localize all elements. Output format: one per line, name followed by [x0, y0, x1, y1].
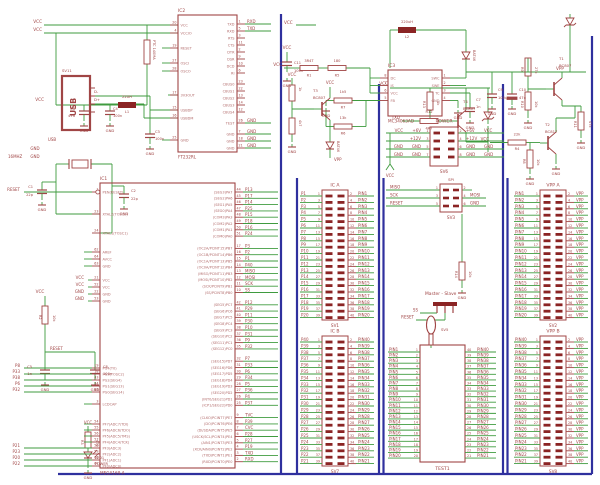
ic1-pin-number: 62: [94, 248, 98, 252]
sv2-right-net: VPP: [576, 255, 584, 260]
sv8-pad: [544, 417, 551, 420]
sv6-num: 3: [426, 137, 428, 141]
sv7-right-num: 40: [350, 460, 354, 464]
sv7-refdes: SV7: [331, 469, 340, 474]
sv2-left-net: PIN2: [515, 197, 525, 202]
sv8-pad: [556, 443, 563, 446]
ic1-pin-name: (OC0A/PCINT12)PB4: [197, 266, 233, 270]
ic2-pin-name: 3V3OUT: [181, 93, 196, 97]
ic1-pin-name: (SEG1)PA5: [214, 203, 233, 207]
ic1-net-label: GND: [75, 296, 84, 301]
sv7-left-num: 7: [318, 357, 320, 361]
sv7-left-net: P39: [301, 343, 309, 348]
sv2-pad: [544, 233, 551, 236]
ic1-pin-name: (SEG0)PA4: [214, 209, 233, 213]
sv8-left-net: PIN23: [515, 446, 527, 451]
zif-right-num: 25: [467, 432, 471, 436]
sv1-right-num: 40: [350, 314, 354, 318]
zif-left-num: 6: [416, 376, 418, 380]
ic2-pin-name: GND: [226, 139, 234, 143]
sv6-pad: [434, 140, 441, 143]
sv1-left-num: 35: [316, 301, 320, 305]
misc-label: 13k: [340, 116, 348, 120]
sv8-pad: [556, 430, 563, 433]
sv2-left-net: PIN7: [515, 229, 525, 234]
ic1-net-label: P11: [245, 312, 253, 317]
ic1-pin-number: 52: [94, 283, 98, 287]
sv8-pad: [544, 424, 551, 427]
sv1-right-net: PIN6: [358, 223, 368, 228]
misc-label: T4: [462, 99, 468, 104]
zif-right-net: PIN25: [477, 431, 489, 436]
sv2-title: VPP A: [546, 183, 560, 189]
transistor-icon: [554, 93, 562, 100]
ic1-pin-name: GND: [103, 299, 111, 303]
ic1-pin-number: 59: [94, 450, 98, 454]
sv8-right-net: VPP: [576, 433, 584, 438]
sv2-left-num: 29: [534, 282, 538, 286]
misc-label: 47u: [519, 96, 526, 100]
ic2-pin-name: CTS: [228, 43, 236, 47]
sv7-left-num: 17: [316, 389, 320, 393]
sv7-pad: [338, 424, 345, 427]
transistor-icon: [554, 78, 562, 85]
sv8-right-net: VPP: [576, 395, 584, 400]
misc-label: R3: [80, 440, 84, 445]
sv2-pad: [556, 214, 563, 217]
misc-label: 10k: [468, 271, 472, 278]
ic2-pin-number: 10: [239, 62, 243, 66]
ic1-net-label: TVC: [244, 413, 253, 418]
ic1-pin-name: (SEG15)PD7: [211, 360, 232, 364]
ic1-pin-name: PF6(ADC6/TDO): [103, 428, 131, 432]
misc-label: VCC: [284, 20, 293, 25]
sv7-right-num: 6: [350, 351, 352, 355]
sv2-right-num: 26: [568, 269, 572, 273]
sv7-pad: [326, 379, 333, 382]
sv2-pad: [556, 195, 563, 198]
ic1-pin-number: 64: [94, 255, 98, 259]
ic2-pin-name: TEST: [225, 121, 236, 125]
jumper-net-b: RESET: [401, 315, 414, 320]
ic1-net-label: P21: [12, 443, 20, 448]
sv1-pad: [338, 233, 345, 236]
sv2-pad: [544, 303, 551, 306]
sv6-pad: [448, 140, 455, 143]
misc-label: C7: [476, 98, 481, 102]
misc-label: VCC: [84, 420, 93, 425]
gnd-label: GND: [577, 145, 586, 150]
sv2-right-net: VPP: [576, 229, 584, 234]
sv8-pad: [556, 366, 563, 369]
zif-left-net: PIN16: [389, 431, 401, 436]
sv7-right-num: 2: [350, 338, 352, 342]
sv2-right-num: 6: [568, 205, 570, 209]
misc-label: C2: [131, 189, 136, 193]
jumper-icon: [433, 302, 457, 306]
sv1-pad: [326, 252, 333, 255]
zif-right-net: PIN29: [477, 408, 489, 413]
ic2-pin-name: RXD: [227, 29, 235, 33]
sv7-pad: [338, 392, 345, 395]
sv7-right-net: PIN22: [358, 452, 370, 457]
sv7-right-net: PIN40: [358, 337, 370, 342]
sv8-pad: [544, 437, 551, 440]
sv7-right-net: PIN29: [358, 407, 370, 412]
sv1-right-net: PIN5: [358, 217, 368, 222]
misc-label: C10: [519, 88, 527, 92]
zif-right-num: 29: [467, 409, 471, 413]
jumper-net-a: SS: [413, 308, 419, 313]
ic1-pin-name: (SS/PCINT8)PB0: [205, 291, 233, 295]
zif-right-num: 23: [467, 443, 471, 447]
sv6-refdes: SV6: [440, 169, 449, 174]
sv8-pad: [544, 449, 551, 452]
zif-left-net: PIN6: [389, 375, 399, 380]
zif-left-num: 20: [414, 454, 418, 458]
misc-label: USB: [48, 137, 56, 142]
sv8-right-net: VPP: [576, 337, 584, 342]
sv1-pad: [338, 201, 345, 204]
ic2-pin-name: VCCIO: [181, 31, 192, 35]
misc-label: VCC: [326, 80, 335, 85]
sv1-pad: [326, 207, 333, 210]
ic1-pin-number: 46: [237, 200, 241, 204]
zif-right-num: 32: [467, 393, 471, 397]
sv2-pad: [556, 284, 563, 287]
sv1-right-num: 14: [350, 230, 354, 234]
ic1-net-label: SCK: [245, 281, 253, 286]
sv1-pad: [326, 303, 333, 306]
ic1-pin-number: 3: [96, 400, 98, 404]
ic2-refdes: IC2: [178, 8, 185, 14]
misc-label: VCC: [33, 19, 42, 24]
sv7-pad: [338, 379, 345, 382]
misc-label: R8: [522, 159, 526, 164]
sv2-left-num: 23: [534, 262, 538, 266]
ic1-net-label: P3: [245, 243, 250, 248]
sv3-pad: [453, 189, 459, 192]
sv8-pad: [556, 411, 563, 414]
zif-right-net: PIN39: [477, 353, 489, 358]
vcc-arrow: [390, 164, 394, 170]
sv8-pad: [544, 456, 551, 459]
sv7-right-num: 32: [350, 434, 354, 438]
misc-label: VCC: [481, 137, 490, 142]
sv8-pad: [556, 424, 563, 427]
ic1-pin-name: LCDCAP: [103, 402, 117, 406]
sv1-right-net: PIN4: [358, 210, 368, 215]
sv2-left-net: PIN15: [515, 281, 527, 286]
ic1-pin-name: AREF: [103, 250, 112, 254]
sv2-right-num: 34: [568, 294, 572, 298]
sv3-pad: [443, 205, 449, 208]
resistor-icon: [459, 262, 465, 280]
ic1-pin-name: (DI/SDA/PCINT5)PE5: [197, 429, 232, 433]
sv7-right-num: 36: [350, 447, 354, 451]
ic1-net-label: RXD: [245, 457, 254, 462]
sv8-left-net: PIN22: [515, 452, 527, 457]
ic1-net-label: GND: [75, 289, 84, 294]
sv2-left-net: PIN17: [515, 293, 527, 298]
sv7-right-num: 16: [350, 383, 354, 387]
sv8-pad: [556, 347, 563, 350]
ic1-pin-name: PG1(SEG13): [103, 384, 125, 388]
ic1-net-label: P16: [245, 225, 253, 230]
sv6-left-net: GND: [412, 152, 421, 157]
sv8-left-num: 5: [536, 351, 538, 355]
sv8-right-net: VPP: [576, 356, 584, 361]
ic1-pin-number: 29: [237, 376, 241, 380]
zif-right-net: PIN34: [477, 380, 489, 385]
ic1-net-label: MOSI: [245, 275, 255, 280]
misc-label: T3: [312, 88, 318, 93]
sv8-pad: [556, 360, 563, 363]
sv8-left-num: 15: [534, 383, 538, 387]
sv2-left-net: PIN18: [515, 300, 527, 305]
sv1-pad: [338, 214, 345, 217]
sv1-pad: [338, 259, 345, 262]
sv7-pad: [326, 405, 333, 408]
sv7-right-num: 12: [350, 370, 354, 374]
ic1-pin-name: XTAL2(TOSC2): [103, 212, 129, 216]
misc-label: VCC: [35, 97, 44, 102]
sv2-right-num: 38: [568, 307, 572, 311]
sv1-pad: [326, 259, 333, 262]
sv8-title: VPP B: [546, 329, 559, 335]
misc-label: BAT46: [336, 141, 340, 152]
zif-left-net: PIN14: [389, 420, 401, 425]
sv8-right-net: VPP: [576, 401, 584, 406]
misc-label: 100uF: [498, 96, 509, 100]
ic1-net-label: TXD: [244, 450, 253, 455]
sv2-left-net: PIN12: [515, 261, 527, 266]
sv6-outer-left-net: GND: [394, 144, 403, 149]
misc-label: BC817: [545, 129, 558, 134]
misc-label: TXD: [391, 115, 400, 120]
sv8-pad: [544, 392, 551, 395]
sv7-left-num: 11: [316, 370, 320, 374]
sv7-right-net: PIN26: [358, 427, 370, 432]
ic1-pin-number: 1: [96, 188, 98, 192]
sv1-pad: [338, 265, 345, 268]
sv8-pad: [556, 405, 563, 408]
sv2-pad: [544, 252, 551, 255]
resistor-icon: [144, 40, 150, 64]
ic2-pin-number: 27: [172, 59, 176, 63]
sv6-left-net: GND: [412, 144, 421, 149]
ic2-pin-number: 16: [172, 114, 176, 118]
sv7-pad: [326, 462, 333, 465]
ic1-net-label: P8: [15, 363, 20, 368]
misc-label: C9: [498, 88, 504, 92]
sv1-left-num: 37: [316, 307, 320, 311]
misc-label: VCC: [33, 27, 42, 32]
sv8-pad: [544, 385, 551, 388]
sv8-right-num: 36: [568, 447, 572, 451]
sv8-left-net: PIN28: [515, 414, 527, 419]
misc-label: VCC: [273, 62, 282, 67]
sv8-right-net: VPP: [576, 407, 584, 412]
sv1-left-num: 19: [316, 250, 320, 254]
sv8-left-num: 39: [534, 460, 538, 464]
sv2-pad: [544, 297, 551, 300]
sv8-left-net: PIN37: [515, 356, 527, 361]
ic1-refdes: IC1: [100, 176, 107, 182]
sv7-left-num: 31: [316, 434, 320, 438]
sv2-pad: [544, 201, 551, 204]
misc-label: D-: [94, 89, 99, 94]
sv8-pad: [544, 398, 551, 401]
resistor-icon: [578, 112, 584, 130]
ic3-refdes: IC3: [388, 63, 395, 69]
sv8-right-net: VPP: [576, 375, 584, 380]
ic1-pin-number: 12: [237, 275, 241, 279]
ic1-net-label: CVC: [245, 425, 254, 430]
sv1-pad: [326, 214, 333, 217]
misc-label: C1: [28, 185, 33, 189]
sv7-right-num: 8: [350, 357, 352, 361]
gnd-label: GND: [41, 387, 50, 392]
sv7-right-net: PIN30: [358, 401, 370, 406]
misc-label: C11: [294, 61, 301, 65]
zif-right-net: PIN23: [477, 442, 489, 447]
sv2-pad: [544, 227, 551, 230]
zif-left-net: PIN15: [389, 425, 401, 430]
ic2-pin-name: CBUS4: [223, 110, 236, 114]
zif-left-net: PIN9: [389, 392, 399, 397]
inductor-icon: [118, 102, 136, 108]
sv7-pad: [326, 449, 333, 452]
ic1-pin-number: 15: [237, 257, 241, 261]
gnd-label: GND: [106, 128, 115, 133]
ic3-pin-number: 1: [444, 74, 446, 78]
ic1-pin-number: 36: [237, 338, 241, 342]
ic1-pin-name: PF4(ADC4/TCK): [103, 440, 130, 444]
ic1-pin-name: PG0(SEG14): [103, 390, 125, 394]
sv6-title: POWER: [435, 119, 453, 125]
sv6-num: 2: [460, 129, 462, 133]
sv1-pad: [338, 284, 345, 287]
ic2-pin-name: GND: [181, 138, 189, 142]
sv8-left-num: 17: [534, 389, 538, 393]
ic1-pin-number: 41: [237, 307, 241, 311]
zif-left-net: PIN7: [389, 380, 399, 385]
sv2-left-num: 21: [534, 256, 538, 260]
sv1-pad: [338, 227, 345, 230]
sv1-pad: [326, 310, 333, 313]
ic2-pin-name: CBUS2: [223, 96, 235, 100]
sv8-right-num: 32: [568, 434, 572, 438]
sv8-right-net: VPP: [576, 452, 584, 457]
sv1-right-net: PIN1: [358, 191, 368, 196]
sv2-left-num: 33: [534, 294, 538, 298]
sv1-pad: [338, 220, 345, 223]
sv8-right-num: 14: [568, 376, 572, 380]
sv1-pad: [326, 291, 333, 294]
gnd-label: GND: [80, 128, 89, 133]
sv8-pad: [556, 437, 563, 440]
ic1-pin-name: (SEG18)PD4: [211, 378, 233, 382]
sv7-left-num: 29: [316, 428, 320, 432]
sv8-right-net: VPP: [576, 414, 584, 419]
sv8-pad: [556, 449, 563, 452]
sv1-right-num: 6: [350, 205, 352, 209]
misc-label: R10: [520, 101, 524, 108]
ic2-pin-number: 2: [239, 48, 241, 52]
zif-left-num: 15: [414, 426, 418, 430]
ic1-pin-number: 45: [237, 194, 241, 198]
sv7-left-net: P33: [301, 382, 309, 387]
misc-label: 47u: [68, 114, 75, 118]
ic1-net-label: P25: [245, 206, 253, 211]
ic2-pin-name: GND: [226, 146, 234, 150]
sv7-left-net: P31: [301, 395, 309, 400]
ic1-net-label: P17: [245, 193, 253, 198]
ic2-pin-number: 7: [239, 130, 241, 134]
ic1-pin-number: 33: [94, 388, 98, 392]
sv2-left-num: 35: [534, 301, 538, 305]
ic1-net-label: P31: [245, 331, 253, 336]
ic1-pin-number: 50: [237, 225, 241, 229]
sv8-right-net: VPP: [576, 446, 584, 451]
ic2-pin-name: RTS: [228, 36, 235, 40]
sv2-right-net: VPP: [576, 236, 584, 241]
ic1-pin-name: (DO/PCINT6)PE6: [204, 422, 232, 426]
ic1-pin-name: (AIN1/PCINT3)PE3: [201, 441, 232, 445]
ic1-net-label: P5: [245, 381, 250, 386]
ic2-pin-number: 5: [239, 27, 241, 31]
ic2-pin-number: 23: [239, 80, 243, 84]
sv7-left-net: P36: [301, 363, 309, 368]
ic1-net-label: P1: [245, 256, 250, 261]
sv2-left-num: 11: [534, 224, 538, 228]
ic1-pin-name: (SEG6)PC6: [214, 309, 233, 313]
misc-label: R2: [38, 315, 42, 320]
sv1-pad: [338, 252, 345, 255]
sv2-pad: [556, 252, 563, 255]
ic2-pin-number: 15: [172, 106, 176, 110]
ic1-net-label: RESET: [7, 187, 20, 192]
sv1-left-num: 5: [318, 205, 320, 209]
sv8-pad: [544, 360, 551, 363]
sv7-left-num: 15: [316, 383, 320, 387]
sv1-left-net: P9: [301, 242, 306, 247]
sv2-left-num: 25: [534, 269, 538, 273]
sv8-pad: [544, 373, 551, 376]
zif-left-num: 3: [416, 359, 418, 363]
sv1-title: IC A: [330, 183, 340, 189]
ic1-pin-name: GND: [103, 292, 111, 296]
sv8-left-num: 33: [534, 440, 538, 444]
ic1-pin-number: 10: [237, 288, 241, 292]
misc-label: 100n: [155, 137, 164, 141]
ic1-pin-name: PEN(RESET): [103, 190, 125, 194]
sv6-num: 8: [460, 153, 462, 157]
sv3-refdes: SV3: [447, 215, 456, 220]
sv1-pad: [338, 246, 345, 249]
ic1-pin-number: 38: [237, 326, 241, 330]
sv3-title: SPI: [448, 177, 454, 182]
led-icon: [84, 452, 92, 458]
sv8-pad: [556, 341, 563, 344]
zif-right-num: 31: [467, 398, 471, 402]
sv6-right-net: GND: [466, 152, 475, 157]
ic1-pin-name: PF7(ADC7/TDI): [103, 422, 130, 426]
misc-label: R4: [515, 147, 520, 151]
sv6-right-net: +12V: [466, 136, 477, 141]
sv1-right-net: PIN17: [358, 293, 370, 298]
